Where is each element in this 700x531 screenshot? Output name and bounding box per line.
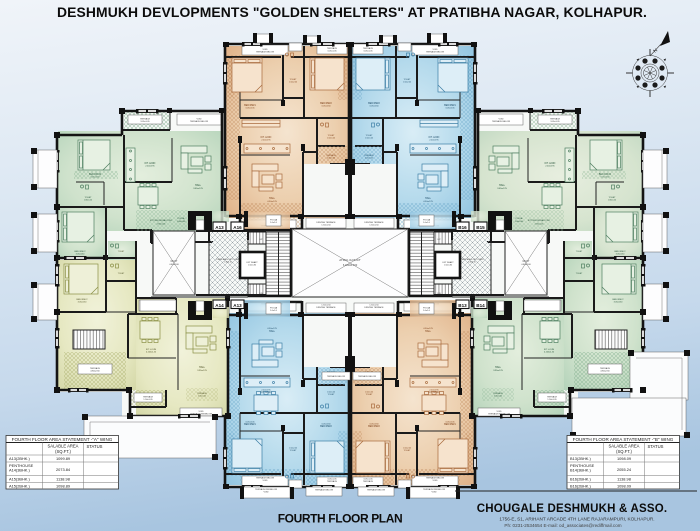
svg-text:1.50x2.40: 1.50x2.40 [403,82,411,84]
svg-text:2.05x1.05: 2.05x1.05 [198,396,206,398]
svg-text:BED RM#2: BED RM#2 [368,426,380,428]
svg-text:FOURTH FLOOR AREA STATEMENT -": FOURTH FLOOR AREA STATEMENT -"A" WING [12,437,113,442]
svg-text:TERRACE BELOW: TERRACE BELOW [492,120,510,123]
svg-text:3.05x3.05: 3.05x3.05 [445,108,455,110]
svg-text:3.05x1.05: 3.05x1.05 [327,479,337,481]
svg-text:3.05x1.05: 3.05x1.05 [140,121,150,123]
svg-text:B14(3BHK.): B14(3BHK.) [570,468,591,473]
svg-text:2.05x1.05: 2.05x1.05 [494,396,502,398]
svg-text:2.40x3.95: 2.40x3.95 [429,140,439,142]
svg-text:TOILET: TOILET [118,273,125,275]
svg-text:2.05x1.05: 2.05x1.05 [365,158,373,160]
svg-text:TOILET: TOILET [118,251,125,253]
svg-text:HALL: HALL [499,184,506,187]
svg-text:4.80x2.60: 4.80x2.60 [90,371,100,373]
svg-text:TERRACE BELOW: TERRACE BELOW [426,51,444,54]
svg-text:A16: A16 [233,225,242,230]
svg-text:4.50x4.25: 4.50x4.25 [267,328,277,330]
svg-text:1098.89: 1098.89 [56,484,70,489]
svg-text:2055.24: 2055.24 [617,467,632,472]
svg-text:TOILET: TOILET [290,450,298,452]
svg-text:TERRACE RM BELOW: TERRACE RM BELOW [255,488,277,491]
svg-text:4.80x4.80: 4.80x4.80 [521,264,531,266]
svg-text:ATRIU./A DUCT: ATRIU./A DUCT [339,258,361,262]
svg-text:DUCT: DUCT [523,260,530,263]
svg-text:3.05x3.60: 3.05x3.60 [321,424,331,426]
svg-text:B14: B14 [476,303,485,308]
svg-text:TOILET: TOILET [576,251,583,253]
svg-text:1.50x2.40: 1.50x2.40 [289,448,297,450]
svg-text:1.50x1.50: 1.50x1.50 [369,305,379,307]
svg-text:STATUS: STATUS [87,444,103,449]
svg-text:1099.89: 1099.89 [56,456,70,461]
svg-text:KIT. & DIN: KIT. & DIN [429,392,440,394]
svg-text:3.05x1.05: 3.05x1.05 [363,51,373,53]
svg-text:TOILET: TOILET [366,394,374,396]
svg-text:1.50x1.80: 1.50x1.80 [444,265,452,267]
svg-text:B13: B13 [458,303,467,308]
svg-text:2.40x3.95: 2.40x3.95 [429,390,439,392]
svg-text:4.80x2.60: 4.80x2.60 [600,371,610,373]
svg-text:3.05x3.60: 3.05x3.60 [369,424,379,426]
svg-text:3.05x3.60: 3.05x3.60 [321,106,331,108]
svg-text:1098.09: 1098.09 [617,484,631,489]
svg-text:3.05x1.05: 3.05x1.05 [550,121,560,123]
svg-text:2073.84: 2073.84 [56,467,71,472]
svg-text:A13: A13 [215,225,224,230]
svg-text:2.40x3.95: 2.40x3.95 [261,390,271,392]
svg-text:A13: A13 [233,303,242,308]
svg-text:1.0x1.0: 1.0x1.0 [423,310,431,312]
svg-text:TERRACE BELOW: TERRACE BELOW [367,489,385,492]
svg-text:1.50x1.80: 1.50x1.80 [248,265,256,267]
svg-text:3.05x3.05: 3.05x3.05 [245,422,255,424]
svg-text:1.50x2.40: 1.50x2.40 [289,82,297,84]
svg-text:SITTING RM BALCONY: SITTING RM BALCONY [150,219,173,222]
svg-text:TERRACE BELOW: TERRACE BELOW [315,489,333,492]
svg-text:1.50x1.40: 1.50x1.40 [365,138,373,140]
svg-text:B15: B15 [476,225,485,230]
svg-text:1138.98: 1138.98 [56,477,70,482]
svg-text:A15(2BHK.): A15(2BHK.) [9,484,30,489]
svg-text:SITTING RM BALCONY: SITTING RM BALCONY [528,219,551,222]
svg-text:HALL: HALL [269,197,276,200]
svg-text:1.0x1.0: 1.0x1.0 [270,222,278,224]
svg-text:CHOUGALE DESHMUKH & ASSO.: CHOUGALE DESHMUKH & ASSO. [477,503,668,515]
svg-text:HALL: HALL [269,330,276,333]
svg-text:HALL: HALL [195,184,202,187]
svg-text:B16(2BHK.): B16(2BHK.) [570,484,591,489]
svg-text:1098.09: 1098.09 [617,456,631,461]
svg-text:B16: B16 [458,225,467,230]
svg-text:1.0x1.0: 1.0x1.0 [423,222,431,224]
svg-text:HALL: HALL [199,366,206,369]
svg-text:FOURTH FLOOR AREA STATEMENT -": FOURTH FLOOR AREA STATEMENT -"B" WING [573,437,674,442]
svg-text:3.05x1.05: 3.05x1.05 [327,51,337,53]
svg-text:VOID: VOID [432,480,438,482]
svg-text:TERRACE BELOW: TERRACE BELOW [358,375,376,378]
svg-text:3.05x3.60: 3.05x3.60 [369,106,379,108]
svg-text:2.90x1.05: 2.90x1.05 [157,224,167,226]
svg-text:2.40x3.95: 2.40x3.95 [545,166,555,168]
svg-text:3.05x3.60: 3.05x3.60 [78,302,88,304]
svg-text:FOURTH FLOOR PLAN: FOURTH FLOOR PLAN [278,512,403,526]
svg-text:3.05x1.05: 3.05x1.05 [363,479,373,481]
svg-text:3.95x4.25: 3.95x4.25 [197,370,207,372]
svg-text:3.05x3.05: 3.05x3.05 [445,422,455,424]
svg-text:UP: UP [259,239,263,241]
svg-text:1.80x1.50: 1.80x1.50 [224,262,231,264]
svg-text:VOID: VOID [262,480,268,482]
svg-text:3.95x4.25: 3.95x4.25 [493,370,503,372]
svg-text:2.05x1.05: 2.05x1.05 [327,158,335,160]
svg-text:A14(3BHK.): A14(3BHK.) [9,468,30,473]
svg-text:BED RM#1: BED RM#1 [444,424,456,426]
svg-text:1.80x1.50: 1.80x1.50 [608,200,616,202]
svg-text:1.94x1.05: 1.94x1.05 [547,399,557,401]
svg-text:POOJA: POOJA [178,217,185,220]
svg-text:VOID: VOID [431,492,437,494]
svg-text:1.00x1.00: 1.00x1.00 [515,221,523,223]
svg-text:TOILET: TOILET [328,394,336,396]
svg-text:TERRACE BELOW: TERRACE BELOW [256,51,274,54]
svg-text:3.65x4.25: 3.65x4.25 [497,188,507,190]
svg-text:TERRACE BELOW: TERRACE BELOW [256,477,274,480]
svg-text:TOILET: TOILET [404,450,412,452]
svg-text:VOID: VOID [263,492,269,494]
svg-text:1.0x1.0: 1.0x1.0 [270,310,278,312]
svg-text:4.80x4.80: 4.80x4.80 [169,264,179,266]
svg-text:1.94x1.05: 1.94x1.05 [143,399,153,401]
svg-text:4.50x4.25: 4.50x4.25 [423,201,433,203]
svg-text:DESHMUKH DEVLOPMENTS "GOLDEN S: DESHMUKH DEVLOPMENTS "GOLDEN SHELTERS" A… [57,4,647,20]
svg-text:(SQ.FT.): (SQ.FT.) [616,449,632,454]
svg-text:3.05x3.05: 3.05x3.05 [245,108,255,110]
svg-text:1.50x1.50: 1.50x1.50 [369,225,379,227]
svg-text:1.50x2.40: 1.50x2.40 [403,448,411,450]
svg-text:1.50x1.40: 1.50x1.40 [327,392,335,394]
svg-text:BED RM#2: BED RM#2 [320,426,332,428]
svg-text:2.90x1.05: 2.90x1.05 [535,224,545,226]
svg-text:A15(3BHK.): A15(3BHK.) [9,477,30,482]
svg-text:2.40x3.95: 2.40x3.95 [145,166,155,168]
svg-text:1138.98: 1138.98 [617,477,631,482]
svg-text:1.00x1.00: 1.00x1.00 [177,221,185,223]
svg-text:KIT. & DIN: KIT. & DIN [261,392,272,394]
svg-text:TERRACE BELOW: TERRACE BELOW [426,477,444,480]
svg-text:UP: UP [437,239,441,241]
svg-text:STATUS: STATUS [648,444,664,449]
svg-text:1.50x1.40: 1.50x1.40 [365,392,373,394]
svg-text:3.65x4.25: 3.65x4.25 [193,188,203,190]
svg-text:HALL: HALL [495,366,502,369]
svg-text:BED RM#1: BED RM#1 [244,424,256,426]
svg-text:3.05x3.60: 3.05x3.60 [614,302,624,304]
svg-text:DUCT: DUCT [171,260,178,263]
svg-text:A14: A14 [215,303,224,308]
svg-text:Ph: 0231-2534654 E-mail: od: Ph: 0231-2534654 E-mail: od_associates@r… [504,523,621,528]
svg-text:1.50x1.50: 1.50x1.50 [321,305,331,307]
svg-text:2.40x3.95: 2.40x3.95 [261,140,271,142]
svg-text:4.50x4.25: 4.50x4.25 [423,328,433,330]
svg-text:HALL: HALL [425,197,432,200]
svg-text:TERRACE RM BELOW: TERRACE RM BELOW [423,488,445,491]
svg-text:1.80x1.50: 1.80x1.50 [84,200,92,202]
svg-text:4.245x2.40: 4.245x2.40 [544,352,555,354]
svg-text:1.50x1.40: 1.50x1.40 [327,138,335,140]
svg-text:B16(2BHK.): B16(2BHK.) [570,477,591,482]
svg-text:4.245x2.40: 4.245x2.40 [146,352,157,354]
svg-text:6.400x6.400: 6.400x6.400 [343,263,358,267]
svg-text:3.05x3.60: 3.05x3.60 [76,254,86,256]
svg-text:A13(2BHK.): A13(2BHK.) [9,456,30,461]
svg-text:1.80x1.50: 1.80x1.50 [468,262,475,264]
svg-text:3.05x3.60: 3.05x3.60 [616,254,626,256]
svg-text:TERRACE BELOW: TERRACE BELOW [327,375,345,378]
svg-text:TOILET: TOILET [576,273,583,275]
svg-text:HALL: HALL [425,330,432,333]
svg-text:SALABLE AREA: SALABLE AREA [609,444,640,449]
svg-text:4.50x4.25: 4.50x4.25 [267,201,277,203]
svg-text:(SQ.FT.): (SQ.FT.) [55,449,71,454]
svg-text:SALABLE AREA: SALABLE AREA [48,444,79,449]
svg-text:POOJA: POOJA [516,217,523,220]
svg-text:B13(2BHK.): B13(2BHK.) [570,456,591,461]
svg-text:1756-E, S1, ARIHANT ARCADE 4TH: 1756-E, S1, ARIHANT ARCADE 4TH LANE RAJA… [499,517,654,522]
svg-text:1.50x1.50: 1.50x1.50 [321,225,331,227]
svg-text:TERRACE BELOW: TERRACE BELOW [190,120,208,123]
